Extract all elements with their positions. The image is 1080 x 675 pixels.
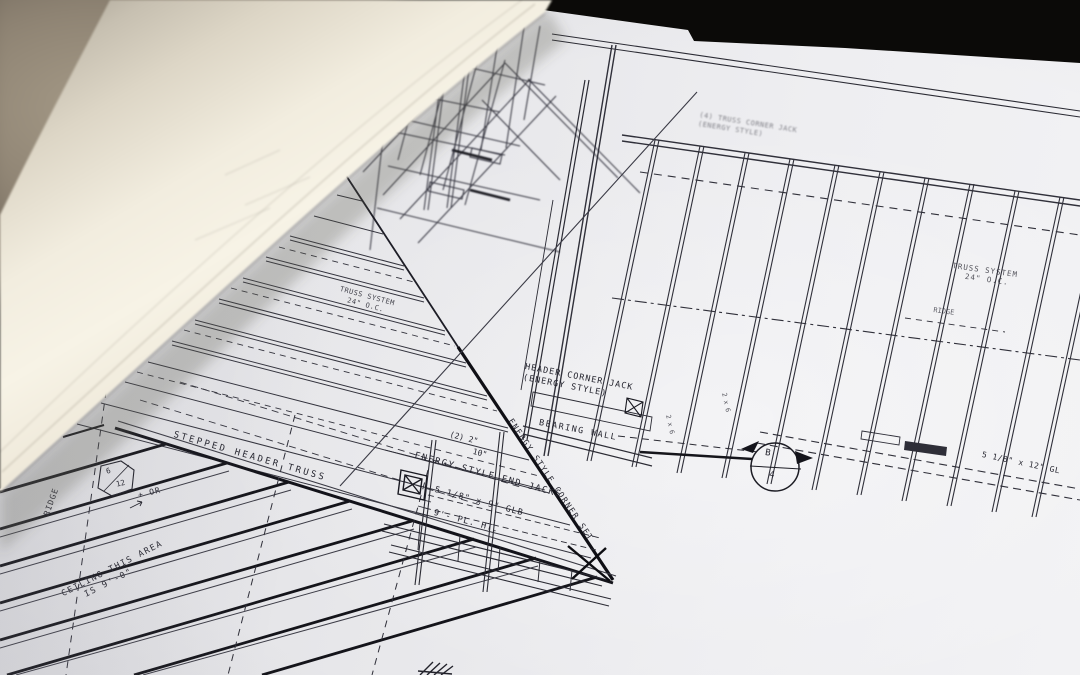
photo-scene: (4) TRUSS CORNER JACK(ENERGY STYLE) TRUS… [0, 0, 1080, 675]
blueprint-roll [0, 0, 1080, 675]
